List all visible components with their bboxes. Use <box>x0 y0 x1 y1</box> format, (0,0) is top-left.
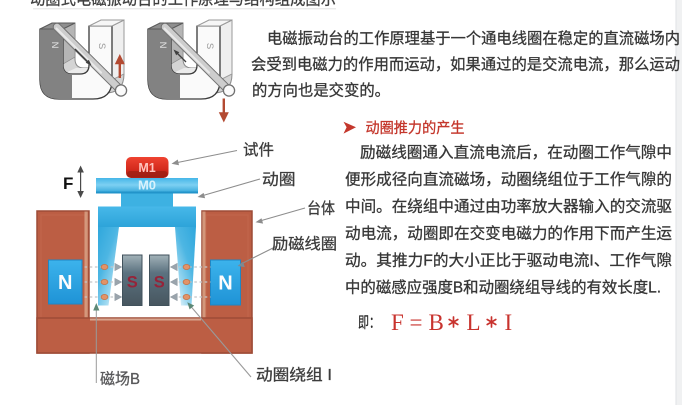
svg-text:励磁线圈: 励磁线圈 <box>272 235 337 253</box>
svg-text:的方向也是交变的。: 的方向也是交变的。 <box>252 81 390 99</box>
svg-text:电磁振动台的工作原理基于一个通电线圈在稳定的直流磁场内: 电磁振动台的工作原理基于一个通电线圈在稳定的直流磁场内 <box>267 29 680 47</box>
svg-text:试件: 试件 <box>243 141 274 159</box>
svg-text:动圈推力的产生: 动圈推力的产生 <box>366 120 465 137</box>
svg-text:磁场B: 磁场B <box>100 370 140 388</box>
svg-text:动。其推力F的大小正比于驱动电流I、工作气隙: 动。其推力F的大小正比于驱动电流I、工作气隙 <box>345 251 672 269</box>
svg-text:动圈式电磁振动台的工作原理与结构组成图示: 动圈式电磁振动台的工作原理与结构组成图示 <box>30 0 336 9</box>
svg-text:=: = <box>410 310 423 335</box>
svg-text:S: S <box>127 274 138 292</box>
svg-text:会受到电磁力的作用而运动，如果通过的是交流电流，那么运动: 会受到电磁力的作用而运动，如果通过的是交流电流，那么运动 <box>251 55 680 73</box>
svg-text:L: L <box>467 310 481 335</box>
svg-text:动圈: 动圈 <box>262 171 296 189</box>
svg-text:动电流，动圈即在交变电磁力的作用下而产生运: 动电流，动圈即在交变电磁力的作用下而产生运 <box>345 224 672 242</box>
svg-text:N: N <box>49 42 60 49</box>
svg-text:台体: 台体 <box>307 200 335 218</box>
svg-text:I: I <box>505 310 513 335</box>
svg-text:N: N <box>58 272 72 294</box>
svg-text:S: S <box>96 43 107 49</box>
svg-text:便形成径向直流磁场，动圈绕组位于工作气隙的: 便形成径向直流磁场，动圈绕组位于工作气隙的 <box>345 170 672 188</box>
svg-text:B: B <box>429 310 444 335</box>
svg-text:励磁线圈通入直流电流后，在动圈工作气隙中: 励磁线圈通入直流电流后，在动圈工作气隙中 <box>360 143 672 161</box>
svg-text:F: F <box>391 310 404 335</box>
svg-text:N: N <box>218 273 232 295</box>
svg-text:N: N <box>157 42 168 49</box>
svg-text:中的磁感应强度B和动圈绕组导线的有效长度L.: 中的磁感应强度B和动圈绕组导线的有效长度L. <box>345 277 661 296</box>
svg-text:S: S <box>204 43 215 49</box>
svg-text:动圈绕组 I: 动圈绕组 I <box>256 366 332 384</box>
svg-text:M1: M1 <box>138 161 155 175</box>
svg-text:中间。在绕组中通过由功率放大器输入的交流驱: 中间。在绕组中通过由功率放大器输入的交流驱 <box>345 197 672 215</box>
svg-text:F: F <box>63 174 73 193</box>
svg-text:S: S <box>154 274 165 292</box>
svg-text:M0: M0 <box>138 178 156 193</box>
svg-text:即：: 即： <box>358 315 380 332</box>
